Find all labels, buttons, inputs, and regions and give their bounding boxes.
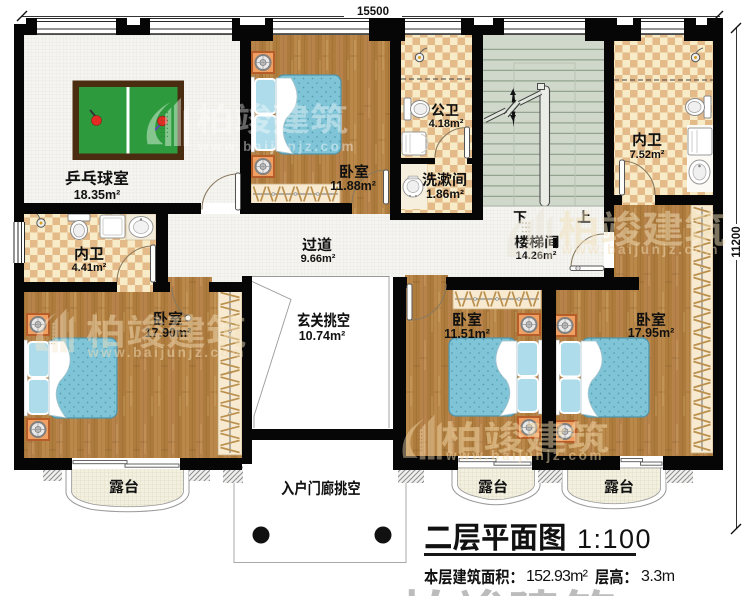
svg-text:1:100: 1:100 <box>577 524 652 554</box>
svg-text:152.93m²: 152.93m² <box>526 568 589 585</box>
svg-text:10.74m²: 10.74m² <box>299 329 346 343</box>
svg-text:4.18m²: 4.18m² <box>429 118 464 130</box>
svg-text:www.baijunjz.com: www.baijunjz.com <box>445 448 604 463</box>
svg-text:18.35m²: 18.35m² <box>74 188 121 202</box>
svg-text:www.baijunjz.com: www.baijunjz.com <box>87 345 246 360</box>
svg-text:11200: 11200 <box>731 226 743 257</box>
svg-text:1.86m²: 1.86m² <box>426 187 464 201</box>
svg-text:3.3m: 3.3m <box>641 568 675 585</box>
svg-text:4.41m²: 4.41m² <box>72 262 107 274</box>
svg-text:9.66m²: 9.66m² <box>301 253 336 265</box>
svg-text:15500: 15500 <box>357 6 389 18</box>
svg-text:17.95m²: 17.95m² <box>628 326 675 340</box>
svg-text:www.baijunjz.com: www.baijunjz.com <box>197 139 356 154</box>
svg-text:www.baijunjz.com: www.baijunjz.com <box>561 242 720 257</box>
svg-text:7.52m²: 7.52m² <box>630 149 665 161</box>
svg-text:11.51m²: 11.51m² <box>444 327 490 341</box>
svg-text:11.88m²: 11.88m² <box>330 179 376 193</box>
